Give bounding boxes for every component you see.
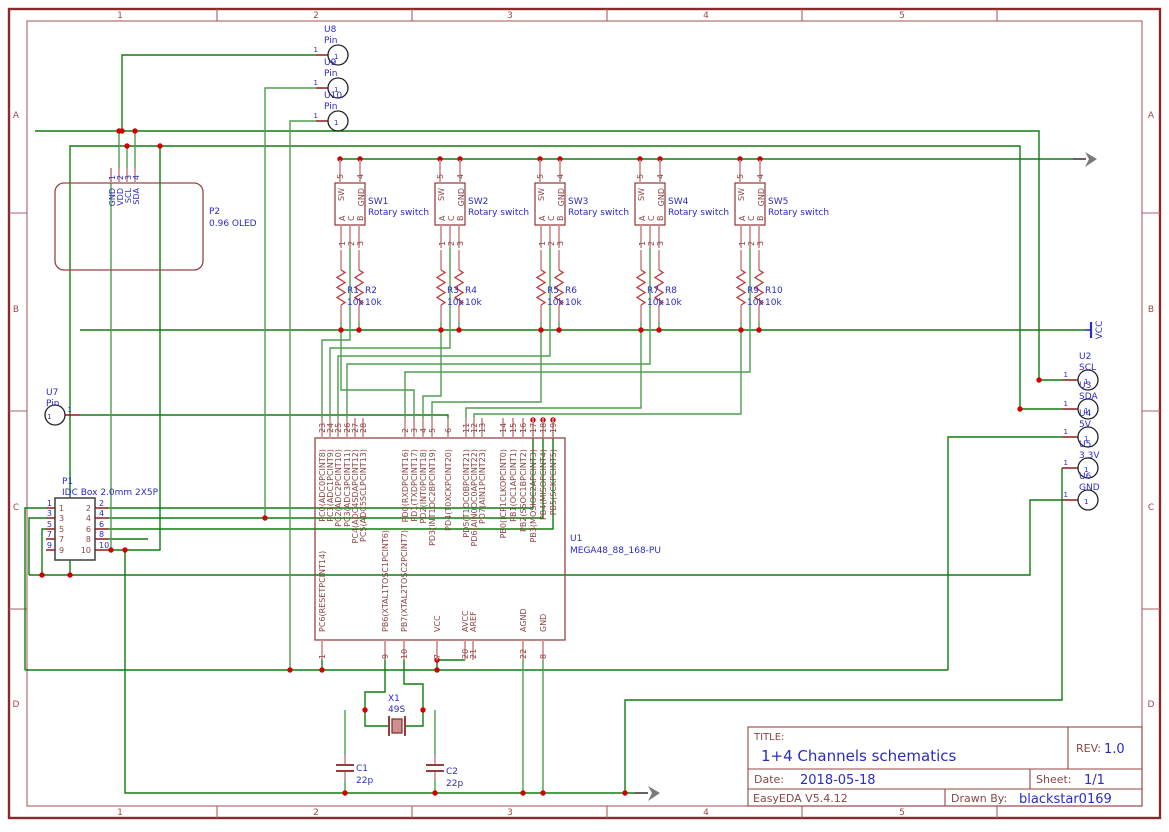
row-label: C	[13, 503, 19, 513]
right-net-pins[interactable]: U2 SCL 1 1 U3 SDA 1 1 U4 5V 1 1 U5 3.3V …	[1062, 352, 1100, 510]
vcc-label[interactable]: VCC	[1095, 321, 1105, 340]
part-value[interactable]: 10k	[565, 298, 582, 308]
part-ref[interactable]: P2	[209, 207, 220, 217]
wire[interactable]	[25, 508, 46, 670]
part-ref[interactable]: R4	[465, 286, 477, 296]
part-ref[interactable]: SW5	[768, 197, 788, 207]
pin-name: C	[747, 215, 756, 221]
pin-number: 1	[338, 241, 347, 246]
rev-label: REV:	[1076, 742, 1101, 755]
pin-number: 1	[68, 406, 72, 414]
resistor-pair-5[interactable]: R9 10k R10 10k	[737, 250, 783, 322]
pin-name: A	[738, 215, 747, 221]
pin-name: SW	[537, 188, 546, 201]
pin-number: 14	[499, 423, 508, 433]
part-value[interactable]: 22p	[356, 776, 373, 786]
pin-name: VCC	[433, 615, 442, 632]
pin-number: 21	[469, 649, 478, 659]
part-value[interactable]: SCL	[1079, 363, 1096, 373]
part-ref[interactable]: U2	[1079, 352, 1091, 362]
part-ref[interactable]: SW4	[668, 197, 689, 207]
pin-name: GND	[757, 188, 766, 206]
pin-number: 1	[1064, 400, 1068, 408]
pin-number: 1	[638, 241, 647, 246]
part-value[interactable]: Pin	[46, 399, 59, 409]
pin-name: PB3(MOSIOC2APCINT3)	[529, 449, 538, 542]
rotary-switches[interactable]: 5 4 SW GND A C B 1 2 3 SW1 Rotary switch…	[335, 160, 829, 248]
pin-number: 2	[447, 241, 456, 246]
pin-name: PC6(RESETPCINT14)	[318, 551, 327, 632]
pin-name: 7	[59, 535, 64, 544]
pin-number: 1	[1064, 459, 1068, 467]
pin-number: 4	[556, 174, 565, 179]
part-ref[interactable]: R10	[765, 286, 783, 296]
pin-name: PD7(AIN1PCINT23)	[478, 449, 487, 524]
pin-number: 2	[99, 499, 104, 508]
switch-sw1[interactable]: 5 4 SW GND A C B 1 2 3 SW1 Rotary switch	[335, 160, 429, 248]
part-ref[interactable]: U5	[1079, 440, 1091, 450]
pin-name: PD4(T0XCKPCINT20)	[444, 449, 453, 531]
sheet-title[interactable]: 1+4 Channels schematics	[761, 747, 956, 765]
pin-name: C	[547, 215, 556, 221]
pin-number: 5	[336, 174, 345, 179]
part-value[interactable]: Rotary switch	[368, 208, 429, 218]
pin-number: 5	[636, 174, 645, 179]
arrow-right-icon[interactable]	[1085, 152, 1097, 167]
part-ref[interactable]: U3	[1079, 381, 1091, 391]
pin-part-u6[interactable]: U6 GND 1 1	[1062, 472, 1100, 510]
pin-number: 4	[456, 174, 465, 179]
part-value[interactable]: Rotary switch	[668, 208, 729, 218]
pin-number: 2	[647, 241, 656, 246]
pin-number: 5	[736, 174, 745, 179]
part-ref[interactable]: R2	[365, 286, 377, 296]
pin-number: 4	[656, 174, 665, 179]
pin-number: 5	[47, 520, 52, 529]
col-label: 5	[899, 11, 905, 21]
pin-number: 9	[381, 654, 390, 659]
part-value[interactable]: Pin	[324, 36, 337, 46]
schematic-sheet: 1 2 3 4 5 1 2 3 4 5 A B C D A B C D	[0, 0, 1169, 827]
mcu-u1[interactable]: 23 24 25 26 27 28 2 3 4 5 6 11 12 13 14 …	[315, 418, 661, 660]
pin-number: 1	[47, 499, 52, 508]
pin-number: 7	[47, 530, 52, 539]
pin-number: 1	[314, 112, 318, 120]
pin-name: PB5(SCKPCINT5)	[549, 449, 558, 515]
pin-number: 18	[539, 423, 548, 433]
part-value[interactable]: 10k	[447, 298, 464, 308]
wire[interactable]	[29, 518, 46, 575]
pin-number: 4	[756, 174, 765, 179]
drawn-by-label: Drawn By:	[951, 792, 1007, 805]
part-ref[interactable]: SW3	[568, 197, 588, 207]
pin-number: 3	[756, 241, 765, 246]
pin-number: 3	[556, 241, 565, 246]
part-value[interactable]: 3.3V	[1079, 451, 1100, 461]
switch-sw4[interactable]: 5 4 SW GND A C B 1 2 3 SW4 Rotary switch	[635, 160, 729, 248]
part-value[interactable]: Rotary switch	[468, 208, 529, 218]
pin-name: GND	[657, 188, 666, 206]
wire[interactable]	[466, 330, 641, 418]
date-value[interactable]: 2018-05-18	[800, 773, 876, 788]
col-label: 5	[899, 808, 905, 818]
arrow-right-icon[interactable]	[648, 786, 660, 801]
wire[interactable]	[474, 330, 741, 418]
wire[interactable]	[80, 415, 448, 418]
pin-number: 3	[656, 241, 665, 246]
col-label: 4	[703, 808, 709, 818]
title-block: TITLE: 1+4 Channels schematics REV: 1.0 …	[748, 727, 1142, 807]
part-ref[interactable]: R5	[547, 286, 559, 296]
pin-number: 3	[456, 241, 465, 246]
col-label: 1	[117, 11, 123, 21]
net-port-arrows[interactable]	[635, 152, 1097, 801]
pin-name: GND	[457, 188, 466, 206]
pin-name: A	[538, 215, 547, 221]
part-ref[interactable]: R3	[447, 286, 459, 296]
oled-p2[interactable]: 1 2 3 4 GND VDD SCL SDA P2 0.96 OLED	[55, 168, 257, 270]
part-value[interactable]: GND	[1079, 483, 1100, 493]
pin-number: 2	[547, 241, 556, 246]
part-ref[interactable]: P1	[62, 477, 73, 487]
row-label: C	[1148, 503, 1154, 513]
pin-name: SW	[737, 188, 746, 201]
part-ref[interactable]: U6	[1079, 472, 1092, 482]
pin-name: 1	[59, 504, 64, 513]
pin-name: PB1(OC1APCINT1)	[509, 449, 518, 522]
pin-number: 28	[359, 423, 368, 433]
pin-name: 1	[1084, 498, 1088, 506]
pin-name: SW	[437, 188, 446, 201]
part-value[interactable]: 10k	[647, 298, 664, 308]
wire[interactable]	[330, 248, 450, 418]
pin-number: 17	[529, 423, 538, 433]
pin-number: 7	[433, 654, 442, 659]
part-value[interactable]: Rotary switch	[768, 208, 829, 218]
pin-name: 3	[59, 514, 64, 523]
pin-name: SW	[337, 188, 346, 201]
resistor-pair-3[interactable]: R5 10k R6 10k	[537, 250, 582, 322]
part-ref[interactable]: U8	[324, 25, 337, 35]
pin-name: 10	[81, 546, 91, 555]
drawn-by-value[interactable]: blackstar0169	[1019, 792, 1112, 807]
resistor-pair-4[interactable]: R7 10k R8 10k	[637, 250, 682, 322]
wire[interactable]	[125, 550, 635, 793]
pin-part-u7[interactable]: U7 Pin 1 1	[45, 388, 80, 425]
col-label: 4	[703, 11, 709, 21]
pin-name: PB4(MISOPCINT4)	[539, 449, 548, 520]
part-ref[interactable]: U4	[1079, 409, 1092, 419]
switch-sw2[interactable]: 5 4 SW GND A C B 1 2 3 SW2 Rotary switch	[435, 160, 529, 248]
pin-number: 5	[428, 428, 437, 433]
pin-name: 9	[59, 546, 64, 555]
resistors[interactable]: R1 10k R2 10k R3 10k R4 10k R5 10k R6 10…	[337, 250, 783, 322]
pin-number: 3	[47, 509, 52, 518]
col-label: 2	[313, 11, 319, 21]
part-value[interactable]: 10k	[365, 298, 382, 308]
part-ref[interactable]: R7	[647, 286, 659, 296]
rev-value[interactable]: 1.0	[1104, 742, 1125, 757]
part-ref[interactable]: R8	[665, 286, 677, 296]
wire[interactable]	[625, 468, 1062, 793]
pin-name: PC2(ADC2PCINT10)	[334, 449, 343, 527]
pin-name: PB6(XTAL1TOSC1PCINT6)	[381, 530, 390, 632]
crystal-x1[interactable]: X1 49S	[388, 694, 405, 736]
pin-name: B	[556, 216, 565, 222]
pin-number: 4	[419, 428, 428, 433]
pin-name: A	[338, 215, 347, 221]
pin-number: 1	[314, 79, 318, 87]
part-value[interactable]: IDC Box 2.0mm 2X5P	[62, 488, 159, 498]
wire[interactable]	[322, 248, 350, 418]
pin-name: 2	[86, 504, 91, 513]
sheet-value[interactable]: 1/1	[1084, 773, 1105, 788]
pin-name: 8	[86, 535, 91, 544]
pin-name: C	[447, 215, 456, 221]
resistor-symbol[interactable]	[337, 270, 345, 305]
pin-number: 2	[347, 241, 356, 246]
pin-name: GND	[539, 614, 548, 632]
part-ref[interactable]: U9	[324, 58, 337, 68]
pin-number: 9	[47, 541, 52, 550]
pin-number: 4	[132, 175, 141, 180]
part-ref[interactable]: R6	[565, 286, 577, 296]
pin-name: PD3(INT1OC2BPCINT19)	[428, 449, 437, 546]
pin-name: AGND	[519, 608, 528, 632]
pin-number: 1	[1064, 491, 1068, 499]
resistor-symbol[interactable]	[637, 270, 645, 305]
resistor-symbol[interactable]	[437, 270, 445, 305]
part-value[interactable]: 0.96 OLED	[209, 219, 257, 229]
pin-name: GND	[557, 188, 566, 206]
date-label: Date:	[754, 773, 784, 786]
row-label: B	[13, 305, 19, 315]
pin-name: PB2(SSOC1BPCINT2)	[519, 449, 528, 532]
pin-name: C	[347, 215, 356, 221]
pin-name: PD1(TXDPCINT17)	[410, 449, 419, 522]
pin-number: 1	[1064, 428, 1068, 436]
pin-number: 19	[549, 423, 558, 433]
pin-name: C	[647, 215, 656, 221]
capacitor-c2[interactable]: C2 22p	[426, 755, 463, 789]
part-value[interactable]: 10k	[465, 298, 482, 308]
row-label: D	[13, 700, 20, 710]
pin-name: PD2(INT0PCINT18)	[419, 449, 428, 523]
capacitor-c1[interactable]: C1 22p	[336, 755, 373, 786]
part-value[interactable]: 10k	[347, 298, 364, 308]
part-ref[interactable]: C1	[356, 764, 368, 774]
part-ref[interactable]: SW2	[468, 197, 488, 207]
wire[interactable]	[948, 437, 1062, 670]
pin-name: PC5(ADC5SCLPCINT13)	[359, 449, 368, 542]
pin-number: 6	[444, 428, 453, 433]
wire[interactable]	[347, 248, 650, 418]
pin-number: 22	[519, 649, 528, 659]
pin-number: 1	[438, 241, 447, 246]
pin-number: 8	[539, 654, 548, 659]
pin-number: 5	[436, 174, 445, 179]
pin-number: 1	[738, 241, 747, 246]
pin-name: AREF	[469, 611, 478, 632]
pin-name: 1	[334, 119, 338, 127]
part-value[interactable]: 5V	[1079, 420, 1092, 430]
pin-number: 2	[401, 428, 410, 433]
part-ref[interactable]: U10	[324, 91, 342, 101]
pin-number: 8	[99, 530, 104, 539]
pin-name: B	[656, 216, 665, 222]
pin-number: 1	[538, 241, 547, 246]
part-ref[interactable]: R9	[747, 286, 759, 296]
pin-name: B	[756, 216, 765, 222]
part-value[interactable]: MEGA48_88_168-PU	[570, 546, 661, 556]
wire[interactable]	[42, 529, 46, 575]
col-label: 2	[313, 808, 319, 818]
resistor-pair-1[interactable]: R1 10k R2 10k	[337, 250, 382, 322]
pin-number: 6	[99, 520, 104, 529]
switch-sw3[interactable]: 5 4 SW GND A C B 1 2 3 SW3 Rotary switch	[535, 160, 629, 248]
pin-number: 2	[747, 241, 756, 246]
pin-name: B	[456, 216, 465, 222]
vcc-net-flag[interactable]: VCC	[1085, 321, 1105, 340]
col-label: 3	[507, 808, 513, 818]
tool-version: EasyEDA V5.4.12	[753, 792, 848, 805]
pin-number: 3	[410, 428, 419, 433]
part-ref[interactable]: SW1	[368, 197, 388, 207]
mcu-top-pins: 23 24 25 26 27 28 2 3 4 5 6 11 12 13 14 …	[318, 418, 558, 547]
pin-number: 1	[318, 654, 327, 659]
wire[interactable]	[341, 330, 414, 418]
pin-number: 16	[519, 423, 528, 433]
row-label: A	[1148, 111, 1155, 121]
wire[interactable]	[432, 330, 541, 418]
part-value[interactable]: Rotary switch	[568, 208, 629, 218]
col-label: 1	[117, 808, 123, 818]
part-value[interactable]: 10k	[547, 298, 564, 308]
title-label: TITLE:	[753, 732, 784, 743]
pin-name: PB7(XTAL2TOSC2PCINT7)	[400, 530, 409, 632]
pin-name: 1	[47, 413, 51, 421]
pin-number: 1	[1064, 371, 1068, 379]
row-label: A	[13, 111, 20, 121]
col-label: 3	[507, 11, 513, 21]
pin-number: 25	[334, 423, 343, 433]
pin-number: 5	[536, 174, 545, 179]
row-label: B	[1148, 305, 1154, 315]
wire[interactable]	[35, 131, 1062, 380]
pin-number: 4	[356, 174, 365, 179]
part-ref[interactable]: U7	[46, 388, 58, 398]
part-value[interactable]: 49S	[388, 705, 405, 715]
pin-number: 1	[314, 46, 318, 54]
part-value[interactable]: SDA	[1079, 392, 1098, 402]
pin-number: 15	[509, 423, 518, 433]
pin-name: GND	[357, 188, 366, 206]
part-value[interactable]: 10k	[747, 298, 764, 308]
pin-number: 10	[99, 541, 109, 550]
schematic-canvas[interactable]: 1 2 3 4 5 1 2 3 4 5 A B C D A B C D	[0, 0, 1169, 827]
pin-number: 3	[356, 241, 365, 246]
wire[interactable]	[405, 248, 750, 418]
sheet-label: Sheet:	[1036, 773, 1072, 786]
wire[interactable]	[290, 121, 316, 670]
part-ref[interactable]: R1	[347, 286, 359, 296]
wire[interactable]	[122, 55, 316, 131]
part-value[interactable]: 22p	[446, 779, 463, 789]
pin-name: 5	[59, 525, 64, 534]
pin-name: A	[638, 215, 647, 221]
crystal-body[interactable]	[392, 719, 402, 733]
pin-name: B	[356, 216, 365, 222]
pin-name: A	[438, 215, 447, 221]
pin-name: SW	[637, 188, 646, 201]
pin-number: 13	[478, 423, 487, 433]
part-ref[interactable]: U1	[570, 534, 582, 544]
pin-name: 6	[86, 525, 91, 534]
pin-name: SDA	[132, 187, 141, 204]
part-ref[interactable]: X1	[388, 694, 400, 704]
pin-name: 4	[86, 514, 91, 523]
switch-sw5[interactable]: 5 4 SW GND A C B 1 2 3 SW5 Rotary switch	[735, 160, 829, 248]
part-value[interactable]: 10k	[765, 298, 782, 308]
part-value[interactable]: Pin	[324, 69, 337, 79]
resistor-symbol[interactable]	[537, 270, 545, 305]
pin-name: PD0(RXDPCINT16)	[401, 449, 410, 522]
pin-name: PB0(ICP1CLKOPCINT0)	[499, 449, 508, 538]
pin-number: 10	[400, 649, 409, 659]
part-ref[interactable]: C2	[446, 767, 458, 777]
row-label: D	[1148, 700, 1155, 710]
pin-number: 4	[99, 509, 104, 518]
resistor-pair-2[interactable]: R3 10k R4 10k	[437, 250, 482, 322]
resistor-symbol[interactable]	[737, 270, 745, 305]
part-value[interactable]: 10k	[665, 298, 682, 308]
part-value[interactable]: Pin	[324, 102, 337, 112]
